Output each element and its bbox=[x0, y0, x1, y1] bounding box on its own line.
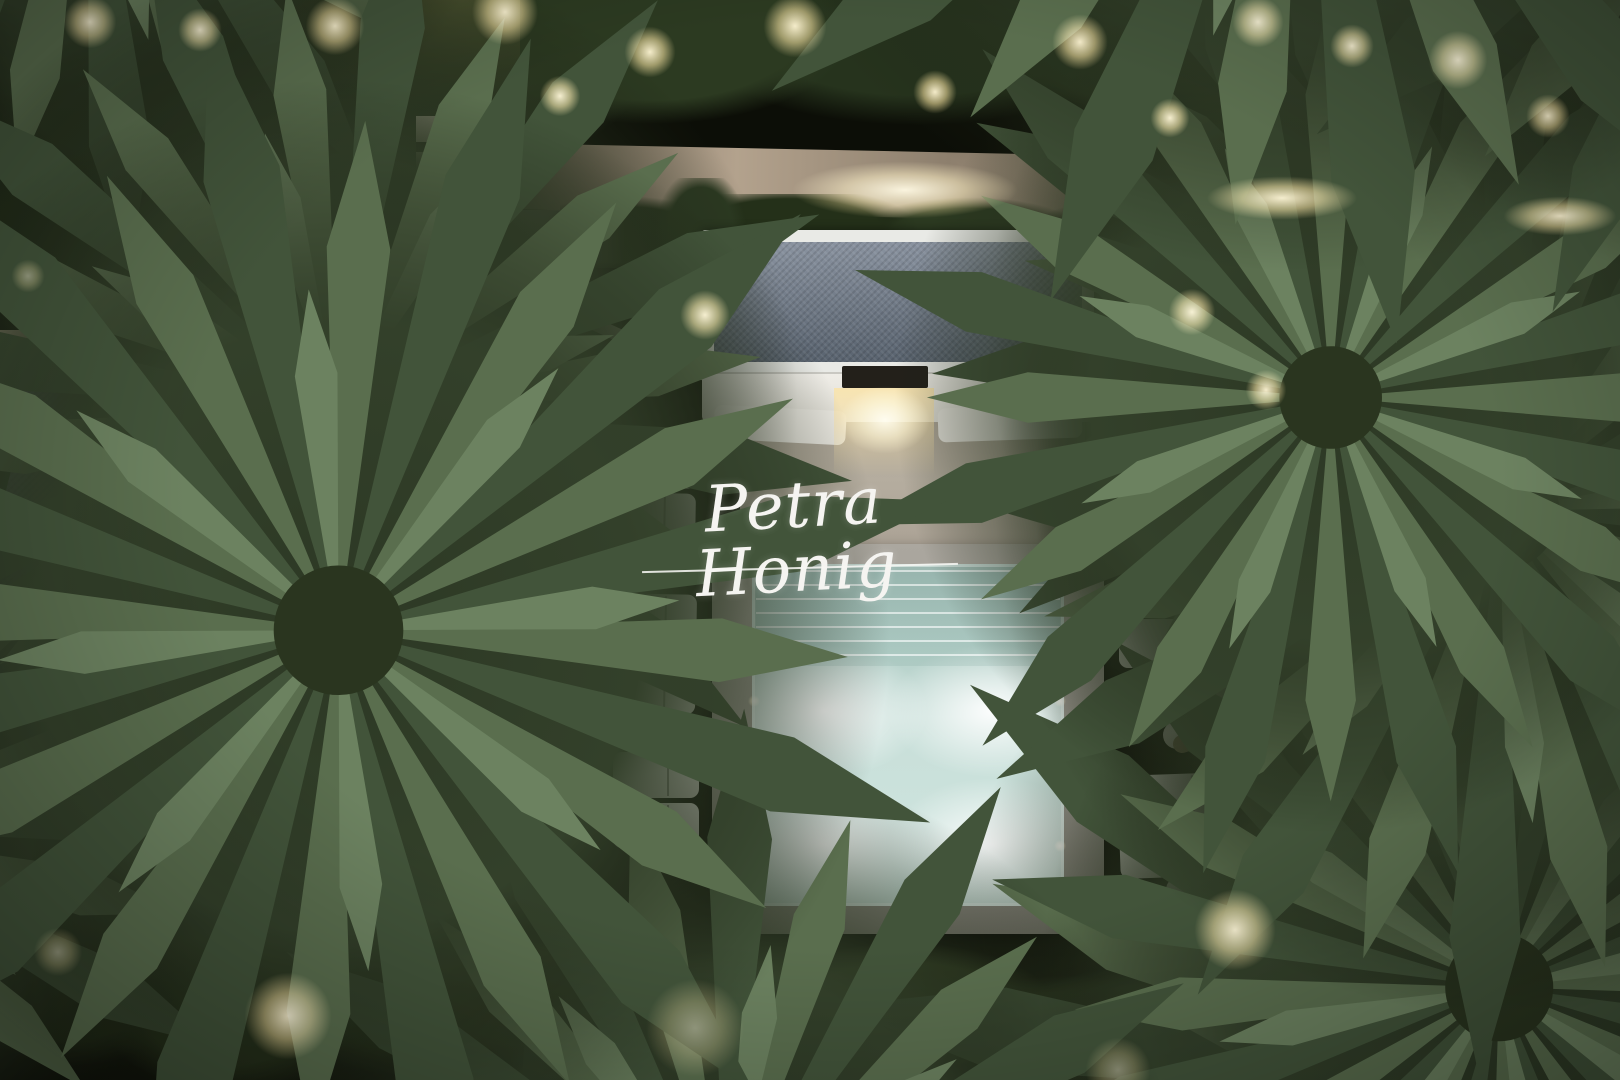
sun-lounger bbox=[1119, 673, 1236, 722]
left-villa-skylight-glass bbox=[174, 400, 242, 694]
sun-lounger bbox=[1119, 518, 1236, 567]
lounger-pair-left bbox=[609, 593, 697, 714]
sun-lounger bbox=[613, 803, 699, 849]
side-table bbox=[1158, 564, 1186, 592]
lounger-pair-right bbox=[1119, 619, 1236, 722]
sun-lounger bbox=[1119, 619, 1236, 668]
sun-lounger bbox=[613, 752, 699, 798]
palm-trunks bbox=[1178, 544, 1298, 966]
sun-lounger bbox=[609, 656, 696, 715]
lounger-pair-left bbox=[613, 752, 699, 848]
central-villa-roof-gravel bbox=[714, 242, 1082, 362]
garden-light bbox=[1239, 363, 1293, 417]
watermark-text: Petra Honig bbox=[597, 464, 993, 612]
right-villa-upper-roof-gravel bbox=[1490, 250, 1620, 566]
skylight-mullion bbox=[174, 558, 242, 561]
terrace-lounge-chair bbox=[262, 420, 344, 511]
sun-lounger bbox=[1117, 772, 1236, 825]
left-villa-roof-gravel bbox=[0, 386, 144, 710]
slot-light-beam bbox=[834, 388, 934, 476]
sun-lounger bbox=[1119, 464, 1236, 513]
garden-light bbox=[1161, 281, 1223, 343]
hedge-bottom-right bbox=[1040, 956, 1620, 1080]
terrace-chair-ottoman bbox=[300, 506, 338, 558]
sun-lounger bbox=[1119, 826, 1238, 879]
lounger-pair-right bbox=[1117, 772, 1238, 879]
canopy-wing-right bbox=[937, 403, 1082, 442]
lounger-pair-right bbox=[1119, 464, 1236, 567]
aerial-villa-render: Petra Honig bbox=[0, 0, 1620, 1080]
canopy-wing-left bbox=[713, 405, 847, 446]
canopy-skylight-slot bbox=[842, 366, 928, 388]
side-table bbox=[1163, 721, 1191, 749]
pool-water bbox=[752, 564, 1064, 906]
side-table bbox=[1166, 876, 1194, 904]
